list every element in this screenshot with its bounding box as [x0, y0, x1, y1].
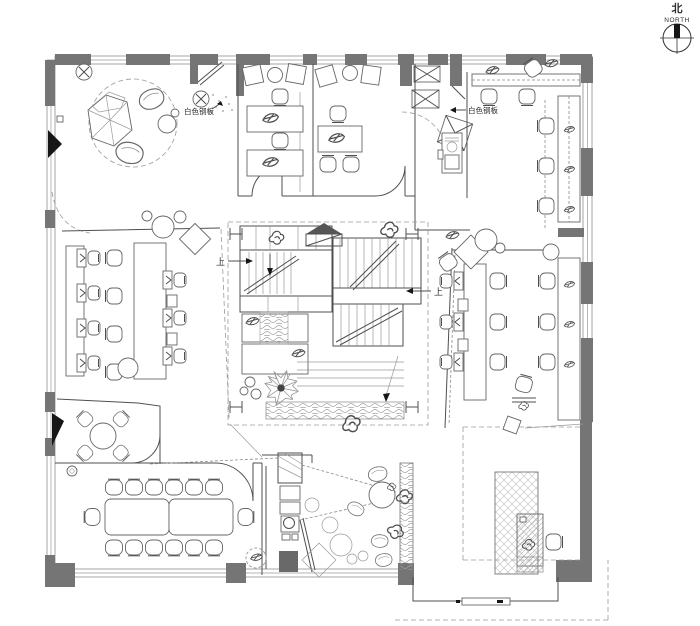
meeting-nook — [67, 409, 160, 476]
workstation — [77, 354, 100, 372]
column-icon — [406, 401, 418, 413]
chair — [539, 354, 556, 370]
bench — [266, 402, 404, 419]
desk-row — [558, 258, 580, 420]
chair — [519, 89, 535, 106]
pouf — [345, 499, 366, 518]
chair — [546, 534, 563, 550]
sculpture — [381, 222, 398, 237]
kitchen-cabinet — [278, 453, 315, 572]
round-table — [90, 423, 116, 449]
plant-icon — [486, 67, 499, 74]
cabinet-block — [279, 551, 298, 572]
table — [242, 344, 308, 374]
chair — [186, 479, 203, 495]
pouf — [374, 552, 393, 568]
chair — [106, 540, 123, 556]
chair — [111, 409, 131, 429]
desk — [247, 106, 303, 132]
chair — [490, 273, 507, 289]
chair — [106, 479, 123, 495]
desk-row — [134, 243, 166, 379]
stair-annotations: 上 上 — [216, 257, 443, 297]
pouf — [371, 535, 388, 548]
planter-corner — [454, 229, 559, 269]
stair-up-left-label: 上 — [216, 257, 225, 267]
conference-table — [169, 499, 233, 535]
tree-icon — [265, 371, 298, 406]
chair — [111, 443, 131, 463]
chair — [75, 409, 95, 429]
chair — [166, 479, 183, 495]
desk-row — [464, 264, 486, 400]
chair — [343, 156, 359, 173]
chair — [539, 273, 556, 289]
stair-up-right-label: 上 — [434, 287, 443, 297]
chair — [538, 158, 555, 174]
floor-plan-canvas: 上 上 白色钢板 白色钢板 — [0, 0, 700, 626]
floor-plan-page: 上 上 白色钢板 白色钢板 — [0, 0, 700, 626]
steel-plate-left-label: 白色钢板 — [184, 106, 214, 116]
workstation — [440, 313, 463, 331]
desk — [318, 126, 362, 152]
chair — [539, 314, 556, 330]
workstation — [77, 319, 100, 337]
workstation — [163, 309, 186, 327]
lounge-area — [52, 64, 179, 233]
open-office-right — [437, 229, 580, 428]
steel-plate-right-label: 白色钢板 — [468, 105, 498, 115]
chair — [106, 326, 123, 342]
column-icon — [76, 64, 92, 80]
lounge-pouf — [136, 85, 167, 113]
desk — [247, 150, 303, 176]
chair — [272, 89, 288, 106]
conference-room — [55, 463, 266, 575]
side-table — [118, 358, 138, 378]
north-label-en: NORTH — [664, 17, 690, 24]
bar-area — [463, 416, 583, 574]
chair — [538, 198, 555, 214]
office-rooms — [238, 64, 415, 230]
chair — [146, 540, 163, 556]
workstation — [77, 284, 100, 302]
chair — [75, 443, 95, 463]
column-icon — [193, 91, 209, 107]
chair — [272, 133, 288, 150]
section-marker-icon — [52, 413, 64, 446]
chair — [238, 509, 254, 526]
faceted-lounge-chair — [88, 92, 132, 146]
column-icon — [230, 401, 242, 413]
north-label-zh: 北 — [672, 1, 683, 15]
chair — [186, 540, 203, 556]
stair-right — [333, 238, 421, 346]
conference-table — [105, 499, 169, 535]
stair-left — [240, 226, 332, 312]
sculpture — [269, 231, 284, 244]
chair — [146, 479, 163, 495]
workstation — [440, 272, 463, 290]
chair — [514, 374, 534, 394]
door-swing — [132, 435, 160, 464]
chair — [490, 354, 507, 370]
wall-frames — [242, 64, 381, 88]
rug — [260, 312, 288, 344]
chair — [166, 540, 183, 556]
equipment-box — [412, 66, 440, 108]
pouf — [367, 465, 389, 484]
chair — [538, 118, 555, 134]
chair — [106, 288, 123, 304]
chair — [330, 106, 346, 123]
chair — [320, 156, 336, 173]
chair — [206, 479, 223, 495]
chair — [106, 250, 123, 266]
central-core — [228, 222, 428, 434]
lounge-pouf — [114, 140, 145, 166]
workstation — [163, 347, 186, 365]
door-swing — [375, 166, 405, 196]
chair — [490, 314, 507, 330]
work-zone-top-right — [402, 56, 580, 230]
side-table — [158, 115, 176, 133]
compass-needle-icon — [674, 24, 680, 38]
floor-grille — [517, 557, 543, 572]
workstation — [77, 249, 100, 267]
north-compass: 北 NORTH — [660, 1, 694, 54]
plant-icon — [446, 232, 459, 239]
pouf — [369, 482, 395, 508]
chair — [126, 479, 143, 495]
chair — [206, 540, 223, 556]
chair — [481, 89, 497, 106]
copier — [438, 133, 462, 173]
chair — [84, 509, 100, 526]
chair — [126, 540, 143, 556]
wood-counter — [400, 463, 413, 570]
workstation — [163, 271, 186, 289]
